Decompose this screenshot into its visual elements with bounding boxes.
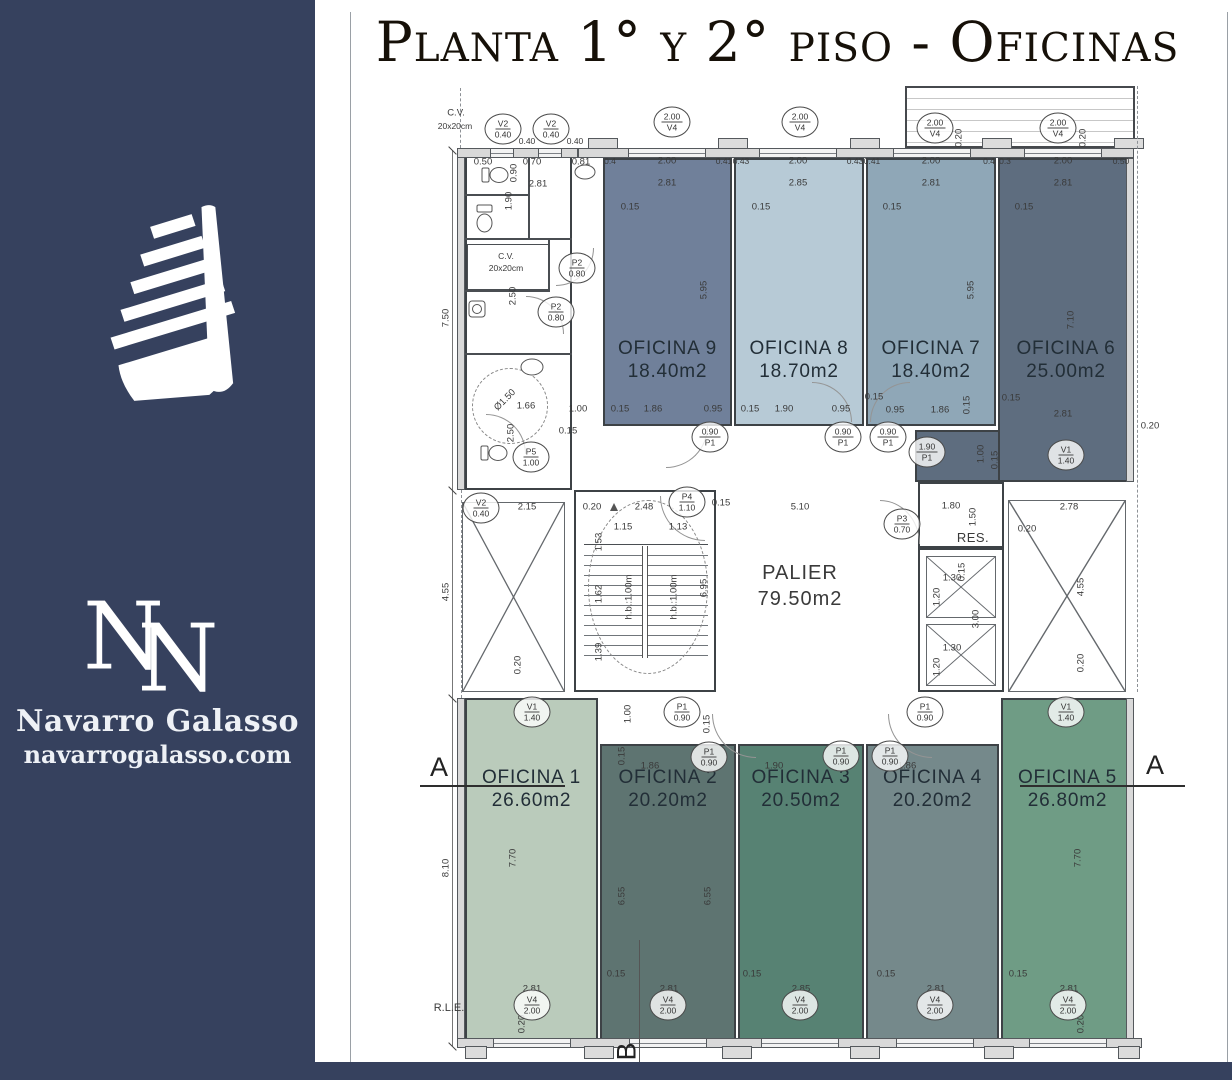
- dim-label: 0.20: [954, 129, 965, 148]
- window-v2: [490, 148, 514, 158]
- dim-label: 0.15: [712, 498, 731, 509]
- ref-tag: 0.90P1: [692, 422, 729, 453]
- room-label: OFICINA 320.50m2: [740, 766, 862, 812]
- ref-tag: V42.00: [782, 990, 819, 1021]
- dim-label: 1.80: [942, 501, 961, 512]
- dim-label: 0.4: [604, 156, 616, 166]
- section-line-a-left: [420, 785, 565, 787]
- wall-pilaster: [1114, 138, 1144, 149]
- wall-pilaster: [850, 138, 880, 149]
- room-label: OFICINA 918.40m2: [605, 337, 730, 383]
- ref-tag: P20.80: [559, 253, 596, 284]
- dim-label: 2.78: [1060, 502, 1079, 513]
- dim-label: 20x20cm: [438, 121, 473, 131]
- page: N N Navarro Galasso navarrogalasso.com P…: [0, 0, 1232, 1080]
- dim-label: 2.81: [1054, 409, 1073, 420]
- section-marker-a: A: [1146, 750, 1164, 781]
- dim-label: 1.20: [932, 588, 943, 607]
- toilet-icon: [474, 204, 496, 234]
- dim-label: 0.3: [999, 156, 1011, 166]
- dim-label: 0.20: [1078, 129, 1089, 148]
- lot-line: [461, 490, 462, 698]
- ref-tag: P30.70: [884, 509, 921, 540]
- ref-tag: 0.90P1: [870, 422, 907, 453]
- dim-label: 0.15: [559, 426, 578, 437]
- dim-label: 0.15: [962, 396, 973, 415]
- dim-label: 0.15: [741, 404, 760, 415]
- dim-label: 0.15: [990, 451, 1001, 470]
- dim-label: 0.15: [621, 202, 640, 213]
- office-8: OFICINA 818.70m2: [734, 158, 864, 426]
- ref-tag: 2.00V4: [654, 107, 691, 138]
- dim-label: 0.20: [583, 502, 602, 513]
- res-label: RES.: [947, 530, 999, 545]
- dim-label: C.V.: [447, 108, 465, 119]
- dim-label: 4.55: [441, 583, 452, 602]
- dim-label: 2.00: [1054, 156, 1073, 167]
- dim-label: 2.81: [658, 178, 677, 189]
- dim-label: 1.62: [594, 585, 605, 604]
- room-label: OFICINA 718.40m2: [868, 337, 994, 383]
- elevator-cab-2: [926, 624, 996, 686]
- stair-direction-arrow: [610, 503, 618, 511]
- dim-label: 1.50: [968, 508, 979, 527]
- ref-tag: V20.40: [533, 114, 570, 145]
- dim-label: 2.50: [506, 424, 517, 443]
- sink-icon: [520, 358, 544, 376]
- wall-pilaster: [850, 1046, 880, 1059]
- dim-label: 5.95: [966, 281, 977, 300]
- dim-label: 1.20: [932, 658, 943, 677]
- wall-pilaster: [718, 138, 748, 149]
- sink-icon: [468, 300, 486, 318]
- dim-label: 0.15: [1002, 393, 1021, 404]
- dim-label: 1.15: [614, 522, 633, 533]
- dim-label: 1.30: [943, 643, 962, 654]
- exterior-wall: [457, 698, 465, 1046]
- dim-label: 7.10: [1066, 311, 1077, 330]
- ref-tag: V11.40: [1048, 440, 1085, 471]
- dim-label: 1.86: [644, 404, 663, 415]
- dim-label: 6.55: [617, 887, 628, 906]
- wall-pilaster: [584, 1046, 614, 1059]
- dim-label: 0.15: [865, 392, 884, 403]
- office-9: OFICINA 918.40m2: [603, 158, 732, 426]
- dim-label: 0.20: [513, 656, 524, 675]
- ref-tag: V11.40: [514, 697, 551, 728]
- dim-label: 1.00: [623, 705, 634, 724]
- dim-label: 1.90: [765, 761, 784, 772]
- dim-label: 0.15: [743, 969, 762, 980]
- dim-label: h.b.:1.00m: [624, 575, 635, 620]
- dim-label: 8.10: [441, 859, 452, 878]
- dim-label: 0.43: [733, 156, 750, 166]
- window-v4: [1029, 1038, 1107, 1048]
- lot-line: [1137, 86, 1138, 692]
- partition-wall: [465, 353, 572, 355]
- dim-label: 1.86: [931, 405, 950, 416]
- ref-tag: P41.10: [669, 487, 706, 518]
- window-v4: [761, 1038, 839, 1048]
- dim-label: 2.85: [789, 178, 808, 189]
- dim-label: 20x20cm: [489, 263, 524, 273]
- wall-pilaster: [588, 138, 618, 149]
- dim-label: 0.70: [523, 157, 542, 168]
- dim-label: 2.50: [508, 287, 519, 306]
- window-v4: [493, 1038, 571, 1048]
- dim-label: 0.15: [752, 202, 771, 213]
- ref-tag: P10.90: [907, 697, 944, 728]
- ref-tag: V42.00: [514, 990, 551, 1021]
- dim-label: 0.4: [983, 156, 995, 166]
- dim-label: 1.53: [594, 533, 605, 552]
- dim-label: 0.15: [702, 715, 713, 734]
- dim-label: 2.81: [922, 178, 941, 189]
- ref-tag: P51.00: [513, 442, 550, 473]
- dim-label: 0.15: [957, 563, 968, 582]
- ref-tag: 1.90P1: [909, 437, 946, 468]
- dim-label: 0.41: [716, 156, 733, 166]
- ref-tag: P20.80: [538, 297, 575, 328]
- ref-tag: 2.00V4: [782, 107, 819, 138]
- dim-label: 0.95: [832, 404, 851, 415]
- dim-label: C.V.: [498, 251, 514, 261]
- dimension-chain: [452, 150, 453, 1046]
- dim-label: 0.81: [572, 157, 591, 168]
- section-line-a-right: [1020, 785, 1185, 787]
- dim-label: 1.86: [641, 761, 660, 772]
- room-label: OFICINA 420.20m2: [868, 766, 997, 812]
- dim-label: 0.15: [877, 969, 896, 980]
- dim-label: 4.55: [1076, 578, 1087, 597]
- dim-label: 0.20: [1018, 524, 1037, 535]
- dim-label: 0.15: [617, 747, 628, 766]
- section-marker-b: B: [612, 1042, 643, 1060]
- ref-tag: 2.00V4: [1040, 113, 1077, 144]
- dim-label: 1.13: [669, 522, 688, 533]
- dim-label: 7.70: [508, 849, 519, 868]
- partition-wall: [465, 238, 572, 240]
- dim-label: 0.95: [886, 405, 905, 416]
- exterior-wall: [457, 148, 465, 490]
- ref-tag: V42.00: [917, 990, 954, 1021]
- dim-label: 7.50: [441, 309, 452, 328]
- dim-label: 6.95: [699, 579, 710, 598]
- dim-label: 2.15: [518, 502, 537, 513]
- dim-label: 5.95: [699, 281, 710, 300]
- dim-label: 1.66: [517, 401, 536, 412]
- floor-plan: OFICINA 918.40m2 OFICINA 818.70m2 OFICIN…: [0, 0, 1232, 1080]
- dim-label: 0.50: [1113, 156, 1130, 166]
- dim-label: 1.90: [775, 404, 794, 415]
- dim-label: 0.50: [474, 157, 493, 168]
- dim-label: 2.00: [922, 156, 941, 167]
- dim-label: 1.00: [569, 404, 588, 415]
- dim-label: 2.81: [1054, 178, 1073, 189]
- exterior-wall: [1126, 158, 1134, 482]
- wall-pilaster: [722, 1046, 752, 1059]
- dim-label: 1.90: [504, 192, 515, 211]
- ref-tag: P10.90: [664, 697, 701, 728]
- ref-tag: P10.90: [691, 742, 728, 773]
- room-label: OFICINA 126.60m2: [467, 766, 596, 812]
- wall-pilaster: [1118, 1046, 1140, 1059]
- dim-label: 0.15: [1015, 202, 1034, 213]
- ref-tag: 2.00V4: [917, 113, 954, 144]
- ref-tag: P10.90: [872, 741, 909, 772]
- sheet-edge-left: [350, 12, 351, 1062]
- dim-label: 0.95: [704, 404, 723, 415]
- dim-label: R.L.E.: [434, 1002, 465, 1014]
- dim-label: 1.39: [594, 643, 605, 662]
- dim-label: 6.55: [703, 887, 714, 906]
- ref-tag: V11.40: [1048, 697, 1085, 728]
- dim-label: 0.43: [847, 156, 864, 166]
- window-v2: [538, 148, 562, 158]
- ref-tag: V20.40: [463, 493, 500, 524]
- dim-label: 0.20: [1141, 421, 1160, 432]
- dim-label: 0.41: [864, 156, 881, 166]
- room-label: OFICINA 625.00m2: [1000, 337, 1132, 383]
- dim-label: 3.00: [971, 610, 982, 629]
- dim-label: 0.15: [611, 404, 630, 415]
- dim-label: 0.15: [607, 969, 626, 980]
- ref-tag: 0.90P1: [825, 422, 862, 453]
- dim-label: 1.00: [976, 445, 987, 464]
- section-marker-a: A: [430, 752, 448, 783]
- ref-tag: V20.40: [485, 114, 522, 145]
- wall-pilaster: [982, 138, 1012, 149]
- dim-label: 2.48: [635, 502, 654, 513]
- wall-pilaster: [465, 1046, 487, 1059]
- exterior-wall: [1126, 698, 1134, 1046]
- dim-label: 0.40: [519, 136, 536, 146]
- ref-tag: P10.90: [823, 741, 860, 772]
- office-7: OFICINA 718.40m2: [866, 158, 996, 426]
- dim-label: 0.15: [883, 202, 902, 213]
- window-v4: [896, 1038, 974, 1048]
- dim-label: 2.00: [658, 156, 677, 167]
- dim-label: 2.00: [789, 156, 808, 167]
- ref-tag: V42.00: [1050, 990, 1087, 1021]
- sheet-edge-right: [1227, 12, 1228, 1062]
- wall-pilaster: [984, 1046, 1014, 1059]
- dim-label: 7.70: [1073, 849, 1084, 868]
- dim-label: 2.81: [529, 179, 548, 190]
- dim-label: 0.15: [1009, 969, 1028, 980]
- dim-label: 0.20: [1076, 654, 1087, 673]
- dim-label: 0.90: [509, 164, 520, 183]
- room-label: OFICINA 818.70m2: [736, 337, 862, 383]
- dim-label: 0.40: [567, 136, 584, 146]
- room-label: OFICINA 220.20m2: [602, 766, 734, 812]
- ref-tag: V42.00: [650, 990, 687, 1021]
- dim-label: h.b.:1.00m: [669, 575, 680, 620]
- room-label: OFICINA 526.80m2: [1003, 766, 1132, 812]
- dim-label: 5.10: [791, 502, 810, 513]
- partition-wall: [465, 194, 530, 196]
- palier-label: PALIER79.50m2: [740, 560, 860, 612]
- partition-wall: [528, 158, 530, 238]
